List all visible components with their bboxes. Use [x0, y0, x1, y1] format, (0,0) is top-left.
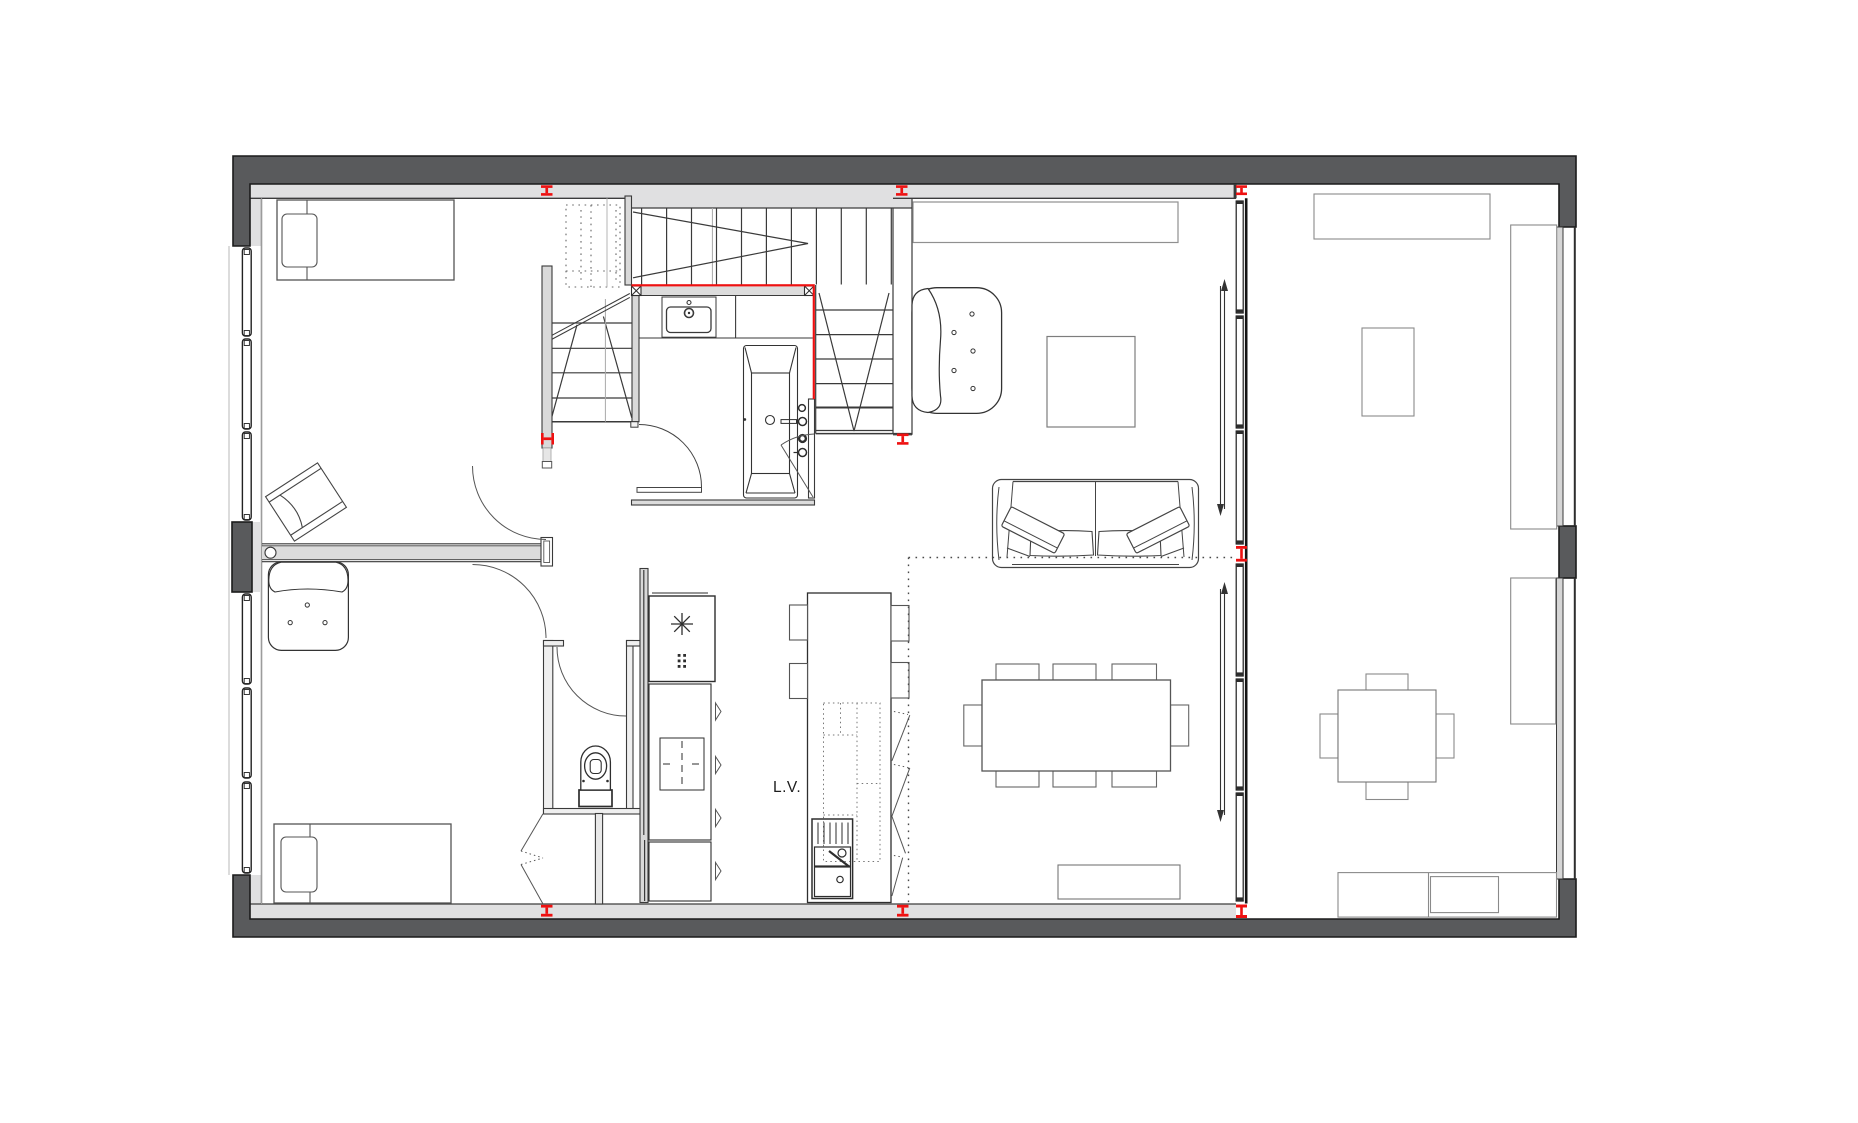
svg-text:L.V.: L.V.	[773, 779, 801, 796]
